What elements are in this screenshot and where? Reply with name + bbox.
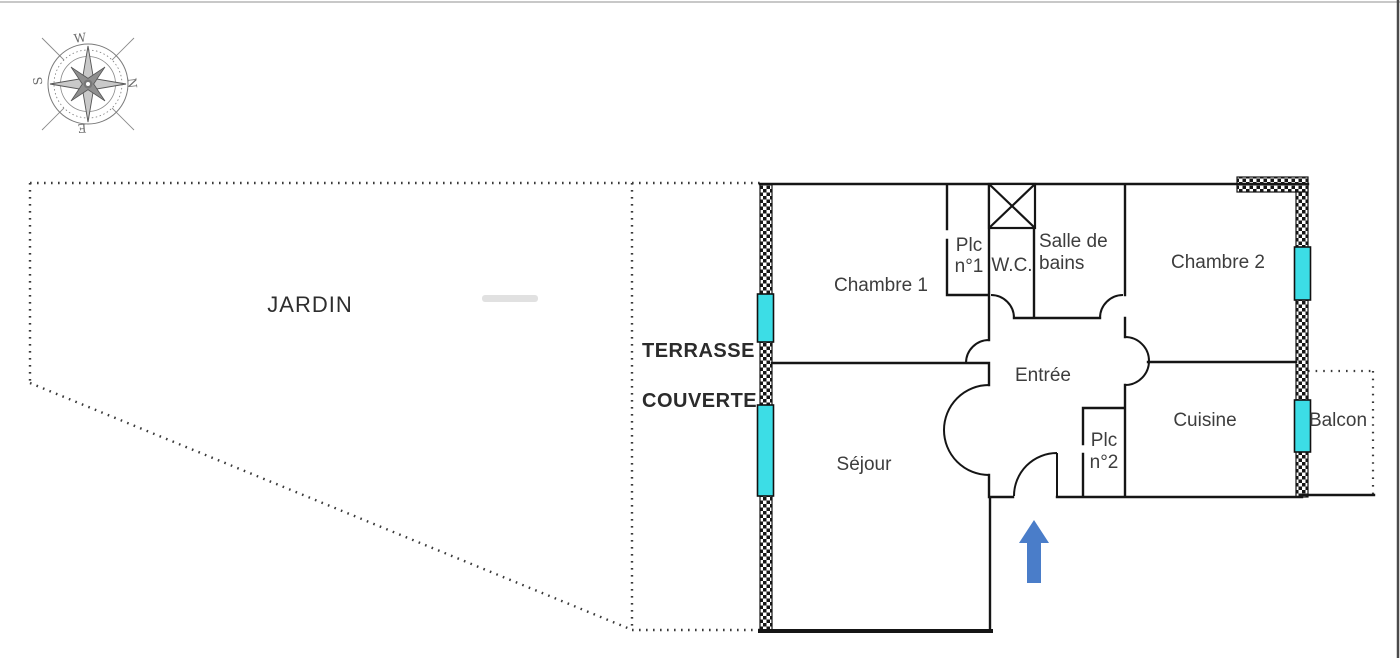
duct-x-box-icon [989, 184, 1035, 228]
compass-east-label: E [77, 121, 87, 136]
closet2-label-line2: n°2 [1090, 452, 1119, 473]
window-living-room [758, 405, 774, 496]
door-arc-bedroom2-kitchen [1125, 337, 1149, 385]
kitchen-label: Cuisine [1173, 410, 1236, 431]
floor-plan-page: JARDIN TERRASSE COUVERTE Chambre 1 Plc n… [0, 0, 1400, 658]
door-arc-entrance [1014, 453, 1057, 497]
closet2-label-line1: Plc [1091, 430, 1117, 451]
door-arc-bathroom [1100, 295, 1123, 318]
window-bedroom2 [1295, 247, 1311, 300]
entrance-arrow-icon [1019, 520, 1049, 583]
compass-rose-icon: W N E S [31, 30, 140, 135]
balcony-label: Balcon [1309, 410, 1367, 431]
door-arc-bedroom1 [966, 340, 989, 363]
living-room-label: Séjour [837, 454, 893, 475]
garden-label: JARDIN [267, 292, 352, 317]
wc-label: W.C. [991, 255, 1032, 276]
compass-north-label: N [124, 77, 139, 89]
balcony-boundary [1308, 371, 1373, 495]
compass-south-label: S [31, 76, 46, 86]
closet1-label-line1: Plc [956, 235, 982, 256]
terrace-label-line1: TERRASSE [642, 340, 755, 362]
terrace-label-line2: COUVERTE [642, 390, 757, 412]
window-bedroom1 [758, 294, 774, 342]
compass-west-label: W [73, 30, 88, 46]
bedroom1-label: Chambre 1 [834, 275, 928, 296]
bathroom-label-line1: Salle de [1039, 231, 1108, 252]
floor-plan-drawing: JARDIN TERRASSE COUVERTE Chambre 1 Plc n… [0, 0, 1400, 658]
door-arc-living-room-double [944, 385, 989, 475]
door-arc-wc [991, 295, 1014, 318]
scan-smudge [482, 295, 538, 302]
closet1-label-line2: n°1 [955, 256, 984, 277]
bathroom-label-line2: bains [1039, 253, 1084, 274]
entry-label: Entrée [1015, 365, 1071, 386]
bedroom2-label: Chambre 2 [1171, 252, 1265, 273]
